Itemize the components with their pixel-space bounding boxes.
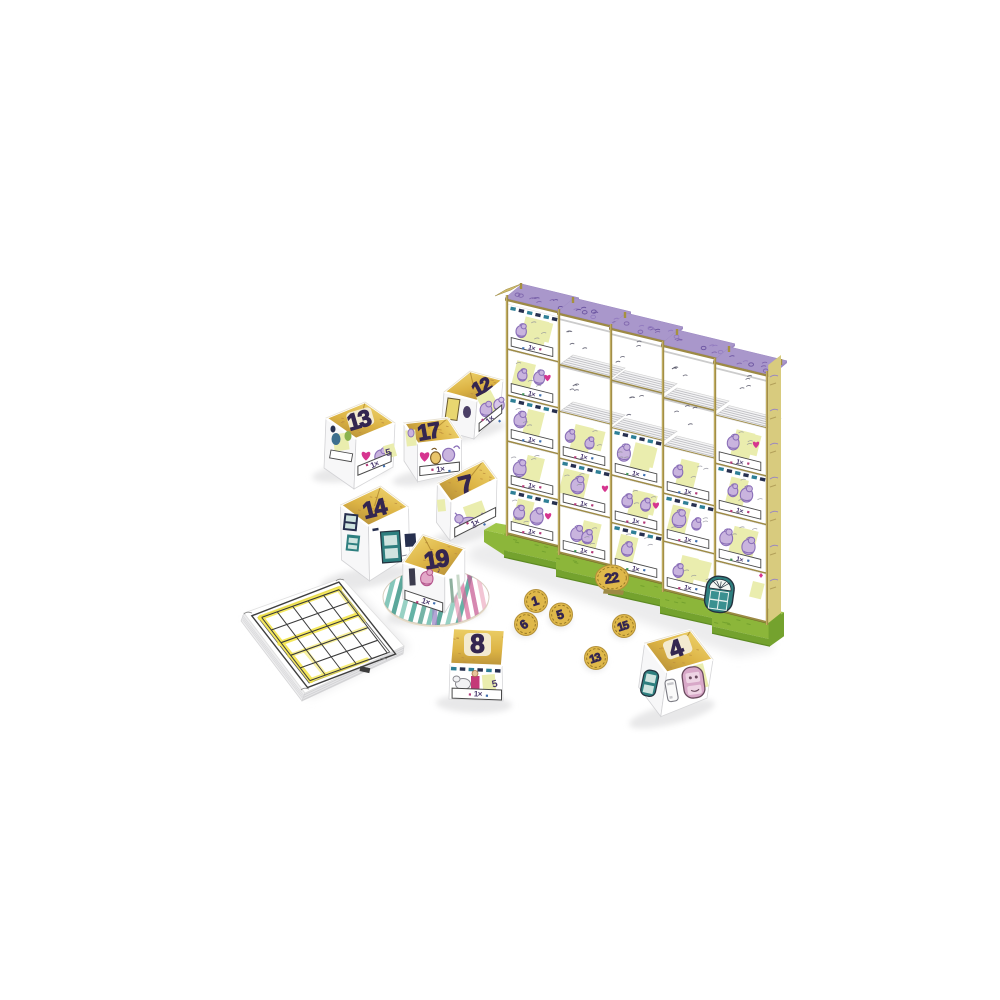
svg-text:■: ■ bbox=[468, 692, 471, 697]
svg-text:■: ■ bbox=[485, 693, 488, 698]
svg-text:♪: ♪ bbox=[437, 566, 441, 575]
svg-text:8: 8 bbox=[470, 629, 484, 659]
svg-text:1×: 1× bbox=[474, 689, 483, 698]
